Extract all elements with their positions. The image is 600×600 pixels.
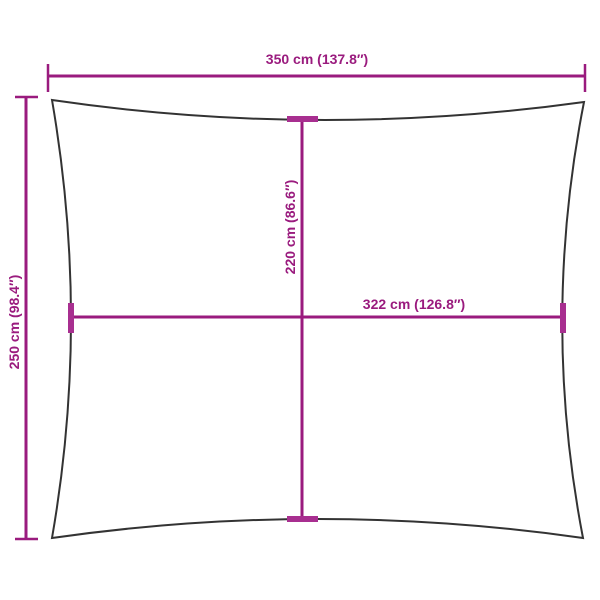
width-inner-label: 322 cm (126.8″) (363, 296, 465, 312)
dimension-tick (287, 116, 318, 122)
height-inner-label: 220 cm (86.6″) (282, 180, 298, 275)
width-total-dimension (48, 64, 585, 92)
dimension-tick (560, 303, 566, 333)
height-total-label: 250 cm (98.4″) (6, 275, 22, 370)
width-total-label: 350 cm (137.8″) (266, 51, 368, 67)
dimension-tick (287, 516, 318, 522)
dimension-tick (68, 303, 74, 333)
shade-sail-dimension-diagram: 350 cm (137.8″) 250 cm (98.4″) 220 cm (8… (0, 0, 600, 600)
diagram-canvas (0, 0, 600, 600)
sail-outline (52, 100, 584, 538)
